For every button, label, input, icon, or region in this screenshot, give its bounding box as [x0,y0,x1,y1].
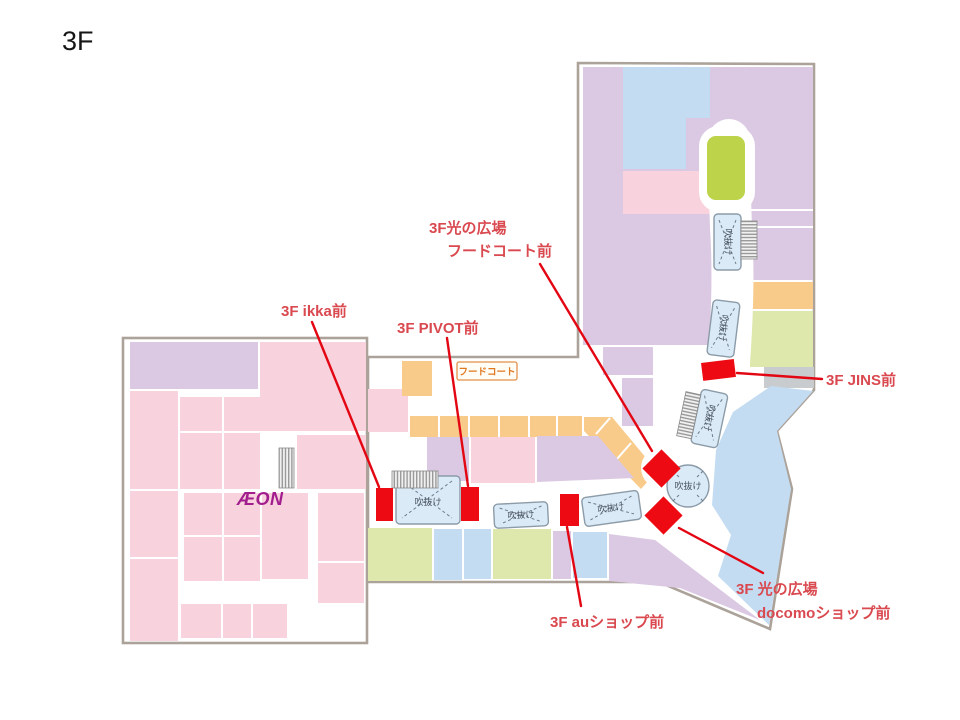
atrium-label: 吹抜け [414,496,441,507]
shop-unit [181,604,221,638]
foodcourt-stall [402,361,432,396]
atrium-label: 吹抜け [723,228,734,255]
shop-unit [464,529,491,579]
shop-unit [297,435,366,489]
escalator-icon [392,471,438,488]
shop-unit [184,537,222,581]
foodcourt-stall [410,416,438,437]
shop-unit [180,433,222,489]
shop-unit [622,378,653,426]
shop-unit [368,528,432,581]
shop-unit [623,171,710,214]
shop-unit [493,529,551,579]
foodcourt-stall [558,416,582,437]
shop-unit [223,604,251,638]
callout-au: 3F auショップ前 [550,613,664,631]
shop-unit [130,391,178,489]
marker-pivot [461,487,479,521]
shop-unit [184,493,222,535]
atrium-box-1: 吹抜け [392,471,460,524]
shop-unit [750,311,813,367]
atrium-label: 吹抜け [674,480,701,491]
callout-ikka: 3F ikka前 [281,302,347,320]
shop-unit [471,437,535,483]
atrium-box-2: 吹抜け [493,502,548,529]
shop-unit [253,604,287,638]
event-space [707,136,745,200]
floor-map-page: ÆON [0,0,960,720]
foodcourt-stall [440,416,468,437]
floor-title: 3F [62,26,94,56]
escalator-icon [741,221,757,259]
marker-au [560,494,579,526]
callout-hikari-foodcourt-line1: 3F光の広場 [429,219,507,237]
escalator-icon [279,448,294,488]
callout-jins: 3F JINS前 [826,371,896,389]
atrium-box-vertical-2: 吹抜け [707,300,741,358]
shop-unit [434,529,462,580]
shop-unit [603,347,653,375]
callout-hikari-foodcourt-line2: フードコート前 [447,242,552,260]
shop-unit [573,532,607,578]
shop-unit [318,563,364,603]
shop-unit [224,433,260,489]
shop-unit [130,342,258,389]
shop-unit [180,397,222,431]
callout-docomo-line1: 3F 光の広場 [736,580,818,598]
callout-pivot: 3F PIVOT前 [397,319,479,337]
floor-map-3f: ÆON [0,0,960,720]
atrium-label: 吹抜け [507,508,535,520]
shop-unit [130,559,178,641]
foodcourt-badge: フードコート [457,362,517,380]
aeon-logo: ÆON [236,489,284,509]
shop-unit [224,397,260,431]
shop-unit [130,491,178,557]
foodcourt-stall [470,416,498,437]
foodcourt-badge-label: フードコート [458,367,515,378]
foodcourt-stall [530,416,556,437]
shop-unit [750,282,813,309]
foodcourt-stall [500,416,528,437]
shop-unit [224,537,260,581]
marker-ikka [376,488,393,521]
shop-unit [318,493,364,561]
callout-docomo-line2: docomoショップ前 [757,604,890,622]
